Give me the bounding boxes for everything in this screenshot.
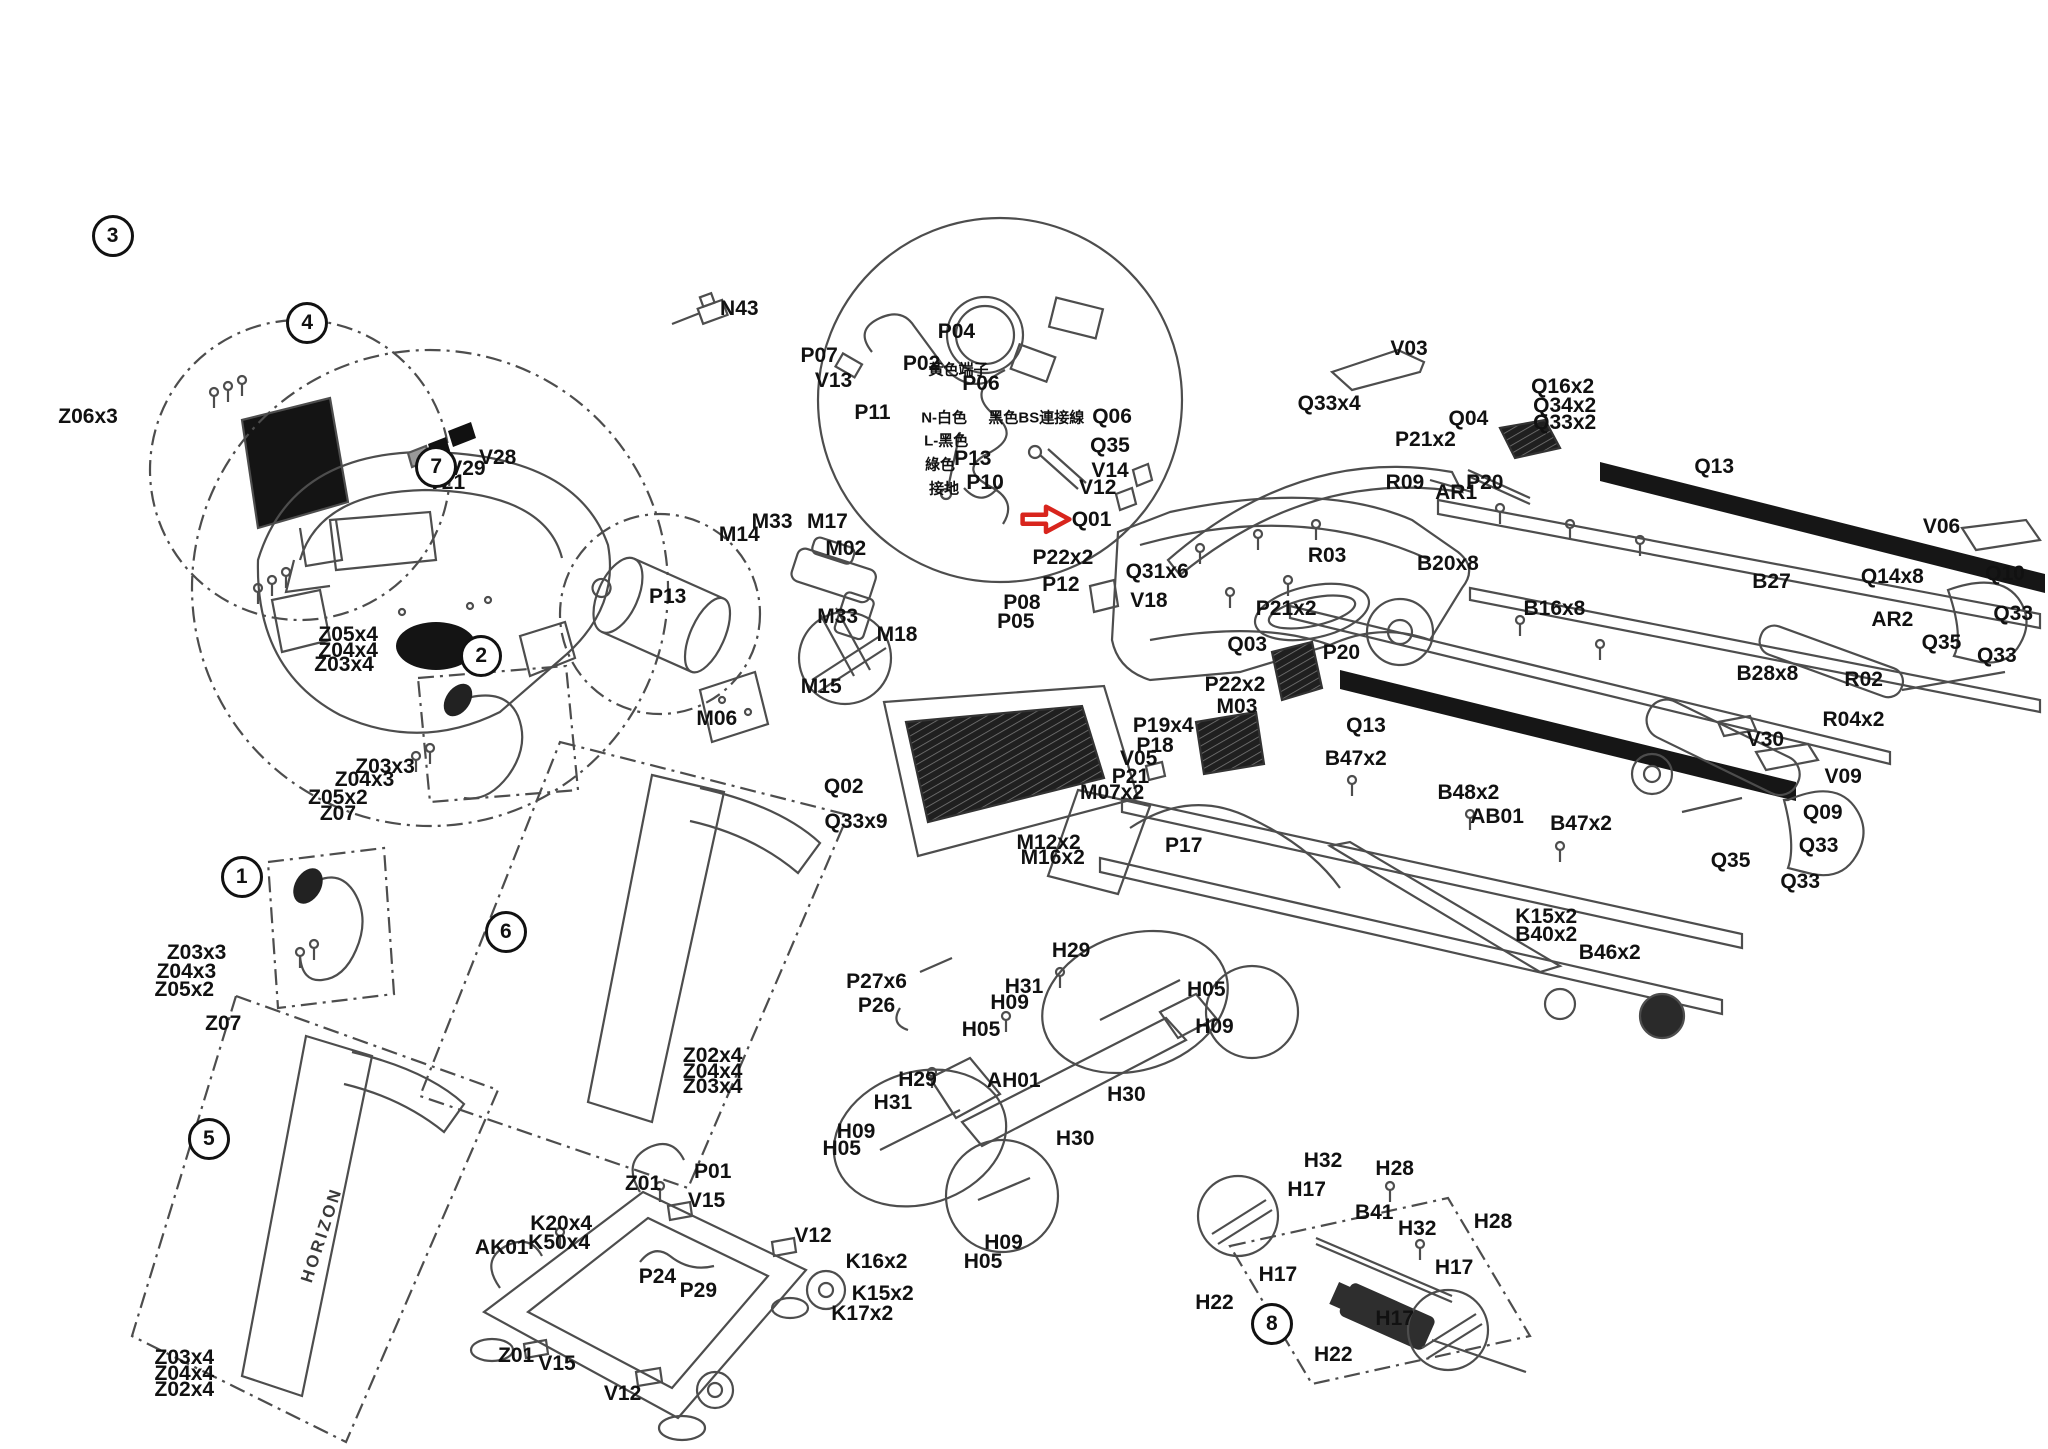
section-balloon-6: 6	[485, 911, 527, 953]
part-label-q14x8: Q14x8	[1861, 565, 1924, 589]
part-label-q33x9: Q33x9	[825, 810, 888, 834]
part-label-h32: H32	[1398, 1217, 1437, 1241]
part-label-q33: Q33	[1993, 602, 2033, 626]
part-label-v12: V12	[794, 1224, 831, 1248]
part-label-b40x2: B40x2	[1515, 923, 1577, 947]
part-label-q35: Q35	[1711, 849, 1751, 873]
part-label-b46x2: B46x2	[1579, 941, 1641, 965]
part-label-h17: H17	[1435, 1256, 1474, 1280]
part-label-v03: V03	[1390, 337, 1427, 361]
part-label-h22: H22	[1195, 1291, 1234, 1315]
section-balloon-8: 8	[1251, 1303, 1293, 1345]
part-label-p12: P12	[1042, 573, 1079, 597]
part-label-m06: M06	[696, 707, 737, 731]
part-label-v09: V09	[1825, 765, 1862, 789]
part-label-p05: P05	[997, 610, 1034, 634]
part-label-v15: V15	[688, 1189, 725, 1213]
part-label-q31x6: Q31x6	[1126, 560, 1189, 584]
part-label-b47x2: B47x2	[1325, 747, 1387, 771]
part-label-v12: V12	[604, 1382, 641, 1406]
part-label-b27: B27	[1752, 570, 1791, 594]
part-label-m02: M02	[825, 537, 866, 561]
part-label-p13: P13	[649, 585, 686, 609]
part-label-q03: Q03	[1227, 633, 1267, 657]
part-label-h29: H29	[1052, 939, 1091, 963]
part-label-ab01: AB01	[1470, 805, 1524, 829]
part-label-p26: P26	[858, 994, 895, 1018]
part-label-p06: P06	[962, 372, 999, 396]
part-label-p20: P20	[1323, 641, 1360, 665]
part-label-q10: Q10	[1985, 562, 2025, 586]
part-label-v12: V12	[1079, 476, 1116, 500]
part-label-h29: H29	[898, 1068, 937, 1092]
part-label-r03: R03	[1308, 544, 1347, 568]
part-label-q04: Q04	[1449, 407, 1489, 431]
part-label-m16x2: M16x2	[1021, 846, 1085, 870]
part-label-q33: Q33	[1780, 870, 1820, 894]
part-label-r09: R09	[1386, 471, 1425, 495]
part-label-p24: P24	[639, 1265, 676, 1289]
part-label-h30: H30	[1107, 1083, 1146, 1107]
part-label-k50x4: K50x4	[528, 1231, 590, 1255]
part-label-h17: H17	[1375, 1307, 1414, 1331]
part-label-m18: M18	[877, 623, 918, 647]
part-label-b20x8: B20x8	[1417, 552, 1479, 576]
part-label-b41: B41	[1355, 1201, 1394, 1225]
labels-layer: Z06x3V28V29V21N43P07V13P11P02P04黃色端子P06N…	[0, 0, 2048, 1449]
part-label-h17: H17	[1287, 1178, 1326, 1202]
part-label-h05: H05	[962, 1018, 1001, 1042]
part-label-r02: R02	[1844, 668, 1883, 692]
part-label-bs: 黑色BS連接線	[988, 407, 1084, 428]
part-label-q33: Q33	[1977, 644, 2017, 668]
part-label-h22: H22	[1314, 1343, 1353, 1367]
part-label-q06: Q06	[1092, 405, 1132, 429]
part-label-ar2: AR2	[1871, 608, 1913, 632]
part-label-z01: Z01	[498, 1344, 534, 1368]
part-label-z07: Z07	[320, 802, 356, 826]
part-label-k17x2: K17x2	[831, 1302, 893, 1326]
part-label-h09: H09	[990, 991, 1029, 1015]
part-label-q33x2: Q33x2	[1533, 411, 1596, 435]
part-label-m03: M03	[1217, 695, 1258, 719]
part-label-v30: V30	[1747, 728, 1784, 752]
part-label-p21x2: P21x2	[1256, 597, 1317, 621]
part-label-h05: H05	[822, 1137, 861, 1161]
part-label-b16x8: B16x8	[1523, 597, 1585, 621]
part-label-p04: P04	[938, 320, 975, 344]
part-label-z06x3: Z06x3	[58, 405, 118, 429]
part-label-b28x8: B28x8	[1736, 662, 1798, 686]
part-label-: 接地	[929, 478, 959, 499]
part-label-h17: H17	[1259, 1263, 1298, 1287]
part-label-q01: Q01	[1072, 508, 1112, 532]
highlight-arrow-icon	[1019, 504, 1073, 536]
section-balloon-4: 4	[286, 302, 328, 344]
part-label-p22x2: P22x2	[1033, 546, 1094, 570]
part-label-z03x4: Z03x4	[683, 1075, 743, 1099]
part-label-q33x4: Q33x4	[1298, 392, 1361, 416]
part-label-p11: P11	[854, 401, 890, 425]
part-label-v15: V15	[538, 1352, 575, 1376]
part-label-n43: N43	[720, 297, 759, 321]
part-label-h32: H32	[1304, 1149, 1343, 1173]
part-label-z02x4: Z02x4	[155, 1378, 215, 1402]
part-label-h28: H28	[1474, 1210, 1513, 1234]
part-label-h05: H05	[964, 1250, 1003, 1274]
part-label-p10: P10	[966, 471, 1003, 495]
part-label-z03x4: Z03x4	[314, 653, 374, 677]
parts-diagram-canvas: Z06x3V28V29V21N43P07V13P11P02P04黃色端子P06N…	[0, 0, 2048, 1449]
part-label-p29: P29	[680, 1279, 717, 1303]
part-label-h05: H05	[1187, 978, 1226, 1002]
part-label-n: N-白色	[921, 407, 967, 428]
part-label-ah01: AH01	[987, 1069, 1041, 1093]
part-label-p07: P07	[801, 344, 838, 368]
part-label-q09: Q09	[1803, 801, 1843, 825]
part-label-h31: H31	[874, 1091, 913, 1115]
part-label-p01: P01	[694, 1160, 731, 1184]
part-label-q02: Q02	[824, 775, 864, 799]
part-label-q13: Q13	[1694, 455, 1734, 479]
section-balloon-3: 3	[92, 215, 134, 257]
part-label-h30: H30	[1056, 1127, 1095, 1151]
part-label-ak01: AK01	[475, 1236, 529, 1260]
part-label-: 綠色	[925, 453, 955, 474]
part-label-m14: M14	[719, 523, 760, 547]
part-label-r04x2: R04x2	[1822, 708, 1884, 732]
part-label-p27x6: P27x6	[846, 970, 907, 994]
part-label-h09: H09	[1195, 1015, 1234, 1039]
part-label-p17: P17	[1165, 834, 1202, 858]
part-label-k16x2: K16x2	[846, 1250, 908, 1274]
part-label-ar1: AR1	[1435, 481, 1477, 505]
section-balloon-1: 1	[221, 856, 263, 898]
section-balloon-7: 7	[415, 446, 457, 488]
part-label-z01: Z01	[625, 1172, 661, 1196]
part-label-q35: Q35	[1922, 631, 1962, 655]
part-label-m07x2: M07x2	[1080, 781, 1144, 805]
part-label-m33: M33	[817, 605, 858, 629]
section-balloon-2: 2	[460, 635, 502, 677]
part-label-h28: H28	[1375, 1157, 1414, 1181]
part-label-v06: V06	[1923, 515, 1960, 539]
section-balloon-5: 5	[188, 1118, 230, 1160]
part-label-z05x2: Z05x2	[155, 978, 215, 1002]
part-label-b48x2: B48x2	[1437, 781, 1499, 805]
part-label-v13: V13	[815, 369, 852, 393]
part-label-p13: P13	[954, 447, 991, 471]
part-label-b47x2: B47x2	[1550, 812, 1612, 836]
part-label-m15: M15	[801, 675, 842, 699]
part-label-p21x2: P21x2	[1395, 428, 1456, 452]
part-label-q33: Q33	[1799, 834, 1839, 858]
part-label-p22x2: P22x2	[1205, 673, 1266, 697]
part-label-v18: V18	[1130, 589, 1167, 613]
part-label-z07: Z07	[205, 1012, 241, 1036]
part-label-q13: Q13	[1346, 714, 1386, 738]
part-label-m17: M17	[807, 510, 848, 534]
part-label-q35: Q35	[1090, 434, 1130, 458]
